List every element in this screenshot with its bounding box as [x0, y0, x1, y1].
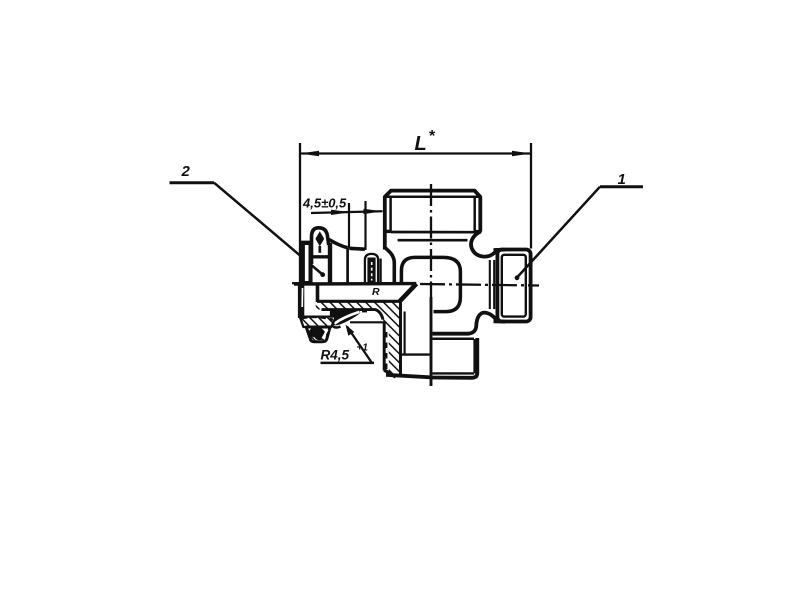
svg-text:R4,5: R4,5	[321, 348, 350, 363]
svg-text:*: *	[429, 128, 436, 145]
svg-text:4,5±0,5: 4,5±0,5	[302, 196, 347, 211]
svg-text:+1: +1	[357, 343, 369, 354]
svg-text:R: R	[372, 286, 380, 298]
svg-text:L: L	[415, 133, 427, 155]
svg-text:1: 1	[618, 171, 626, 188]
svg-text:2: 2	[181, 163, 191, 180]
